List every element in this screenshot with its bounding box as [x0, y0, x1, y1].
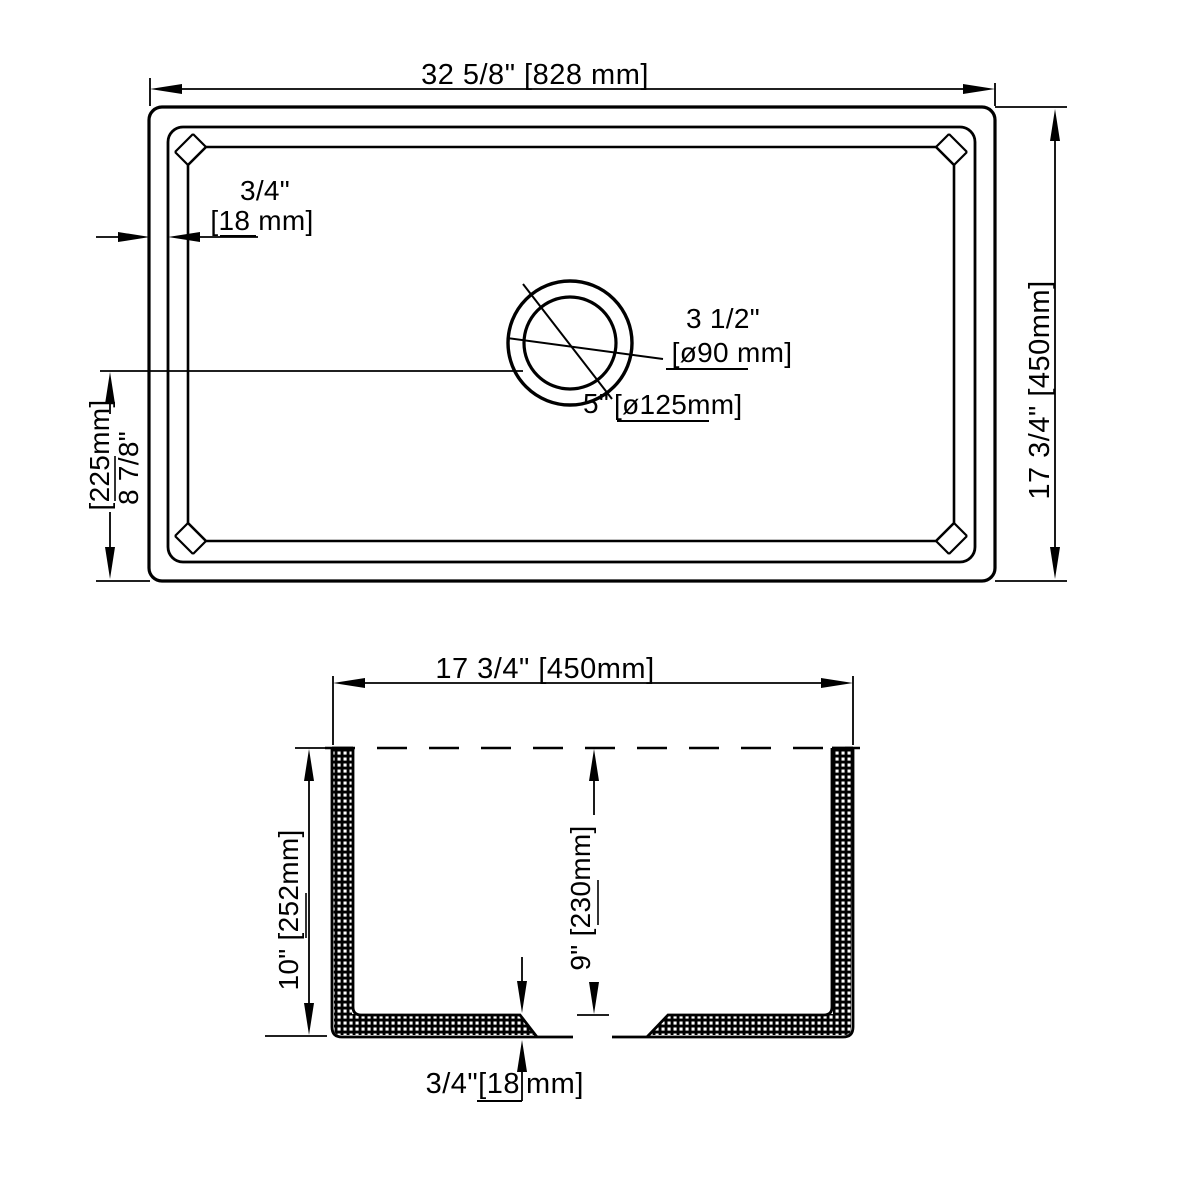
rim-mm-label: [18 mm]: [210, 205, 313, 236]
drain-small-mm-label: [ø90 mm]: [672, 337, 793, 368]
offset-inch-label: 8 7/8": [113, 431, 144, 505]
section-height-dimension: 10" [252mm]: [265, 748, 327, 1036]
section-left-wall-hatch: [333, 749, 535, 1035]
drain-outer-circle: [508, 281, 632, 405]
plan-height-dimension: 17 3/4" [450mm]: [995, 107, 1067, 581]
section-width-dimension: 17 3/4" [450mm]: [333, 653, 853, 745]
section-height-label: 10" [252mm]: [273, 829, 304, 990]
section-view: 17 3/4" [450mm] 10" [252mm] 9" [230mm]: [265, 653, 860, 1101]
drain-large-inch-label: 5": [583, 388, 609, 419]
floor-thickness-inch-label: 3/4"[18: [426, 1068, 520, 1100]
drain-large-mm-label: [ø125mm]: [614, 389, 742, 420]
drain: [507, 281, 663, 405]
drain-diameter-leader-small: [507, 338, 663, 359]
plan-width-dimension: 32 5/8" [828 mm]: [150, 59, 995, 106]
plan-view: 32 5/8" [828 mm] 17 3/4" [450mm] 3/4" [1…: [84, 59, 1067, 581]
plan-height-label: 17 3/4" [450mm]: [1024, 280, 1056, 499]
floor-thickness-mm-label: mm]: [526, 1068, 584, 1100]
section-depth-label: 9" [230mm]: [565, 825, 596, 970]
technical-drawing: 32 5/8" [828 mm] 17 3/4" [450mm] 3/4" [1…: [0, 0, 1200, 1200]
drain-small-inch-label: 3 1/2": [686, 303, 760, 334]
drain-labels: 3 1/2" [ø90 mm] 5" [ø125mm]: [583, 303, 792, 421]
plan-rim-dimension: 3/4" [18 mm]: [96, 175, 314, 242]
drawing-page: 32 5/8" [828 mm] 17 3/4" [450mm] 3/4" [1…: [0, 0, 1200, 1200]
section-width-label: 17 3/4" [450mm]: [435, 653, 654, 685]
plan-width-label: 32 5/8" [828 mm]: [421, 59, 649, 91]
rim-inch-label: 3/4": [240, 175, 290, 206]
section-depth-dimension: 9" [230mm]: [565, 749, 609, 1015]
section-right-wall-hatch: [650, 749, 852, 1035]
offset-mm-label: [225mm]: [84, 399, 115, 510]
corner-facets: [175, 134, 967, 554]
